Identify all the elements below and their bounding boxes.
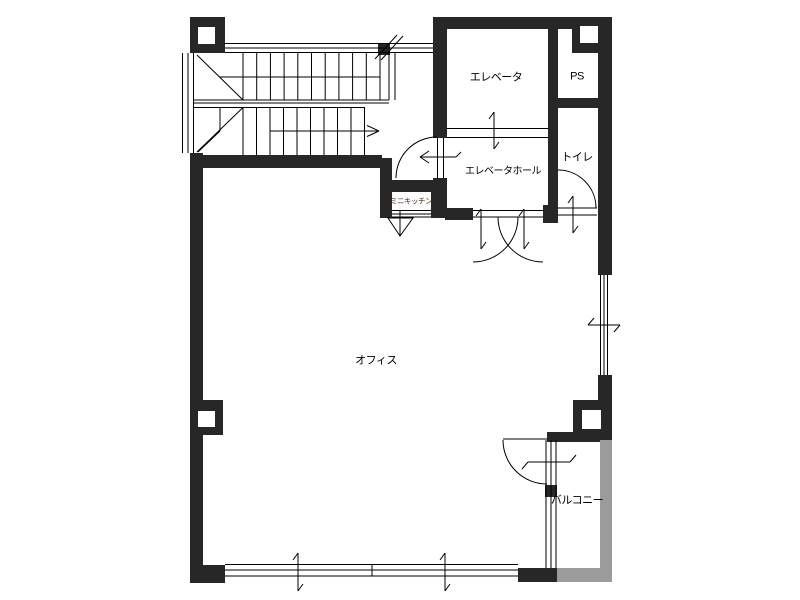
marker-south-window-2 bbox=[440, 553, 450, 591]
marker-balcony-door bbox=[522, 455, 576, 469]
door-arc-toilet bbox=[558, 170, 596, 208]
room-label-toilet: トイレ bbox=[561, 153, 593, 164]
window-stair-top bbox=[225, 44, 433, 53]
door-arc-hall-right bbox=[498, 217, 543, 262]
room-label-balcony: バルコニー bbox=[551, 496, 603, 507]
plan-linework bbox=[0, 0, 800, 600]
window-office-south bbox=[225, 565, 518, 577]
toilet-doorway bbox=[558, 208, 597, 215]
window-stair-left bbox=[183, 53, 194, 153]
marker-hall-door-right bbox=[519, 209, 529, 249]
floor-plan: エレベータ PS エレベータホール トイレ ミニキッチン オフィス バルコニー bbox=[0, 0, 800, 600]
marker-elevator-door bbox=[489, 112, 499, 149]
hall-doorway bbox=[473, 211, 543, 218]
room-label-office: オフィス bbox=[355, 356, 397, 367]
room-label-ps: PS bbox=[570, 72, 584, 83]
kitchen-counter bbox=[392, 211, 431, 218]
door-arc-hall-left bbox=[473, 217, 518, 262]
kitchen-sink-symbol bbox=[388, 211, 413, 236]
elevator-door bbox=[447, 129, 548, 138]
room-label-elevator-hall: エレベータホール bbox=[465, 167, 541, 177]
marker-hall-door-left bbox=[476, 209, 486, 249]
marker-south-window-1 bbox=[293, 553, 303, 591]
room-label-elevator: エレベータ bbox=[470, 73, 523, 84]
room-label-mini-kitchen: ミニキッチン bbox=[390, 197, 432, 205]
marker-stair-door bbox=[420, 151, 461, 163]
